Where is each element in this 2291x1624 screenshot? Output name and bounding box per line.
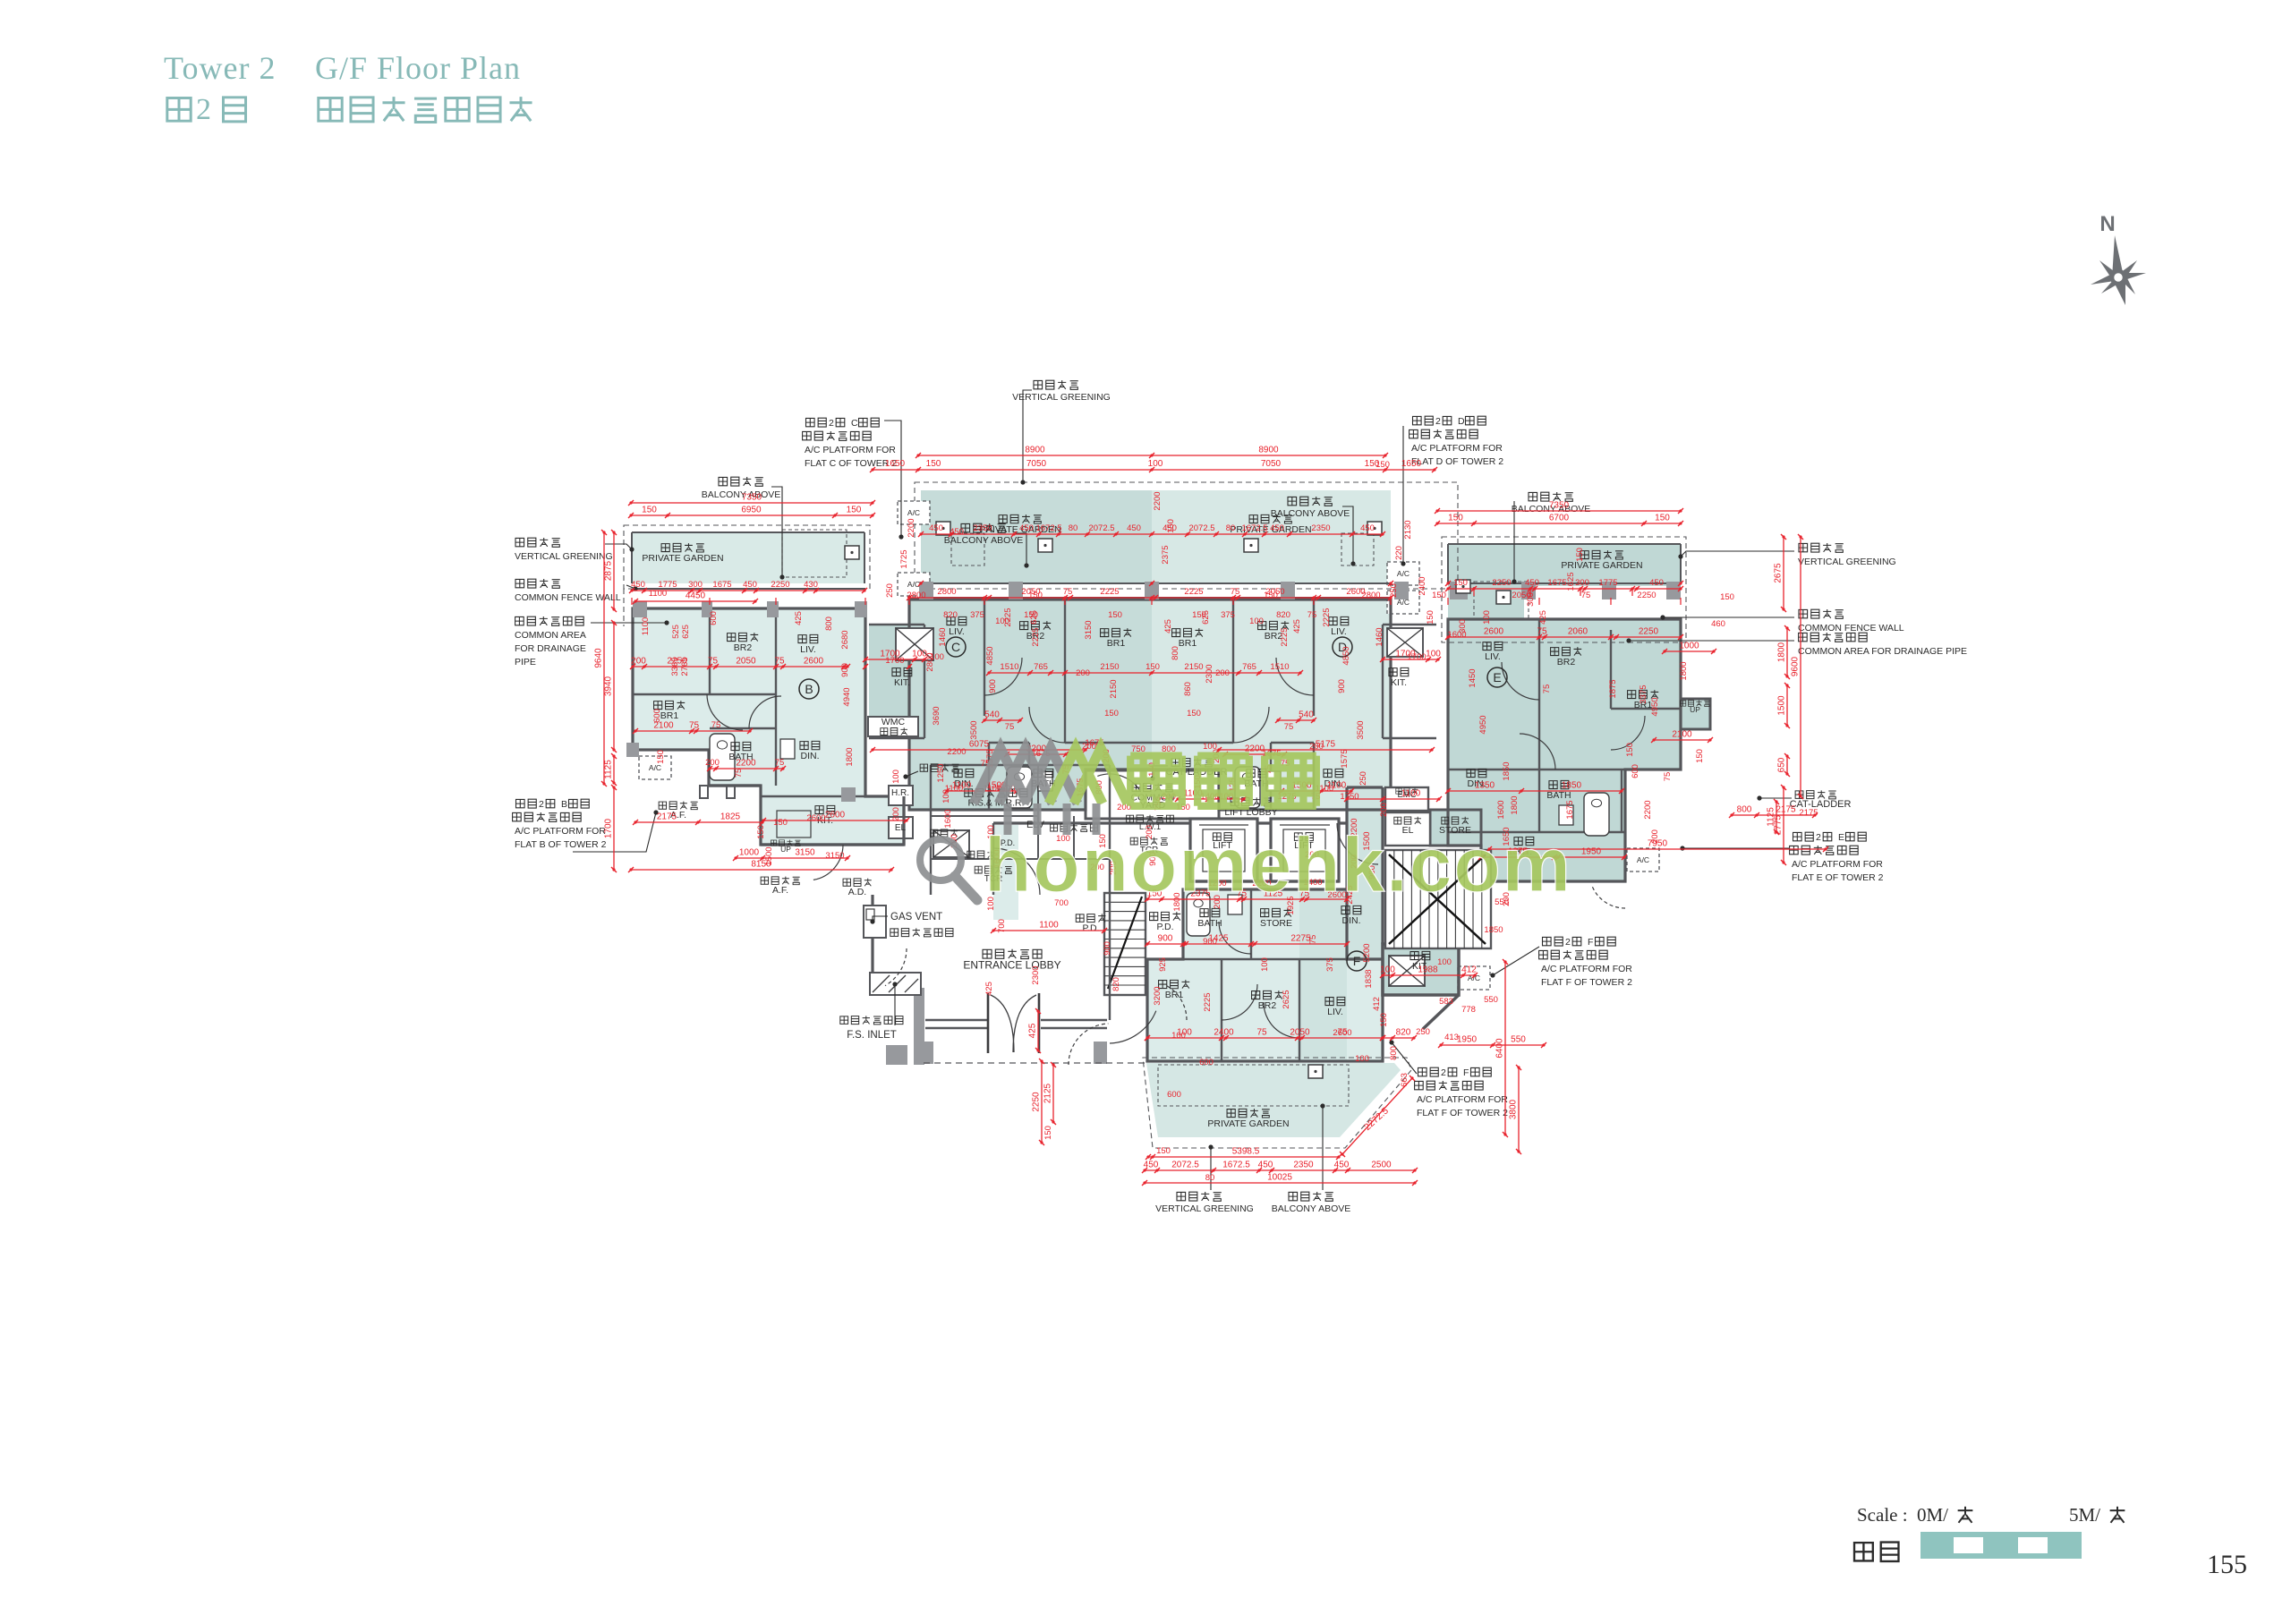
svg-text:100: 100: [995, 616, 1009, 626]
svg-text:KIT.: KIT.: [894, 677, 910, 688]
svg-text:75: 75: [1256, 1028, 1267, 1038]
svg-text:1675: 1675: [712, 580, 731, 590]
svg-text:3150: 3150: [1084, 620, 1094, 639]
svg-text:525: 525: [671, 625, 681, 639]
svg-text:460: 460: [1711, 619, 1725, 629]
svg-text:4450: 4450: [686, 591, 706, 601]
svg-text:9640: 9640: [594, 648, 604, 668]
svg-text:220: 220: [1394, 546, 1404, 560]
svg-text:100: 100: [1380, 965, 1395, 975]
svg-text:VERTICAL GREENING: VERTICAL GREENING: [1012, 392, 1111, 403]
svg-text:2250: 2250: [1492, 578, 1511, 588]
svg-text:550: 550: [1484, 995, 1498, 1005]
svg-text:LIV.: LIV.: [800, 644, 816, 655]
svg-text:150: 150: [847, 506, 862, 515]
svg-text:2: 2: [196, 93, 211, 126]
svg-text:2050: 2050: [1290, 1028, 1310, 1038]
svg-text:BR1: BR1: [1107, 638, 1126, 649]
svg-text:450: 450: [1649, 578, 1664, 588]
svg-text:BR1: BR1: [660, 710, 679, 721]
svg-text:FLAT D OF TOWER 2: FLAT D OF TOWER 2: [1411, 456, 1503, 467]
svg-text:3500: 3500: [1356, 720, 1366, 739]
svg-text:1100: 1100: [945, 784, 963, 794]
svg-text:625: 625: [1201, 610, 1211, 625]
svg-text:150: 150: [1375, 460, 1390, 470]
svg-text:2: 2: [1816, 832, 1821, 843]
svg-text:FLAT C OF TOWER 2: FLAT C OF TOWER 2: [805, 458, 897, 469]
svg-text:FOR DRAINAGE: FOR DRAINAGE: [515, 643, 586, 654]
svg-text:2600: 2600: [1333, 1028, 1351, 1038]
svg-text:2060: 2060: [1568, 627, 1588, 637]
svg-text:FLAT B OF TOWER 2: FLAT B OF TOWER 2: [515, 839, 607, 850]
svg-text:6075: 6075: [969, 740, 990, 750]
svg-text:4940: 4940: [842, 687, 852, 706]
svg-text:540: 540: [1299, 710, 1314, 720]
svg-text:2175: 2175: [1776, 805, 1796, 815]
svg-text:75: 75: [1063, 587, 1073, 597]
svg-text:1460: 1460: [1375, 627, 1384, 646]
svg-text:1100: 1100: [1401, 789, 1421, 799]
svg-text:6700: 6700: [1549, 514, 1570, 523]
svg-text:300: 300: [1575, 578, 1589, 588]
svg-text:150: 150: [642, 506, 657, 515]
svg-text:1500: 1500: [1777, 695, 1787, 716]
svg-text:75: 75: [1542, 684, 1552, 694]
svg-text:1500: 1500: [764, 846, 774, 865]
svg-text:1850: 1850: [1502, 761, 1512, 780]
svg-text:375: 375: [1221, 610, 1235, 620]
svg-text:625: 625: [1029, 610, 1039, 625]
svg-text:2500: 2500: [1371, 1161, 1392, 1170]
svg-text:80: 80: [1226, 523, 1236, 533]
svg-text:7050: 7050: [1261, 459, 1282, 469]
svg-text:1460: 1460: [938, 627, 948, 646]
svg-text:1850: 1850: [1562, 781, 1582, 791]
svg-text:FLAT F OF TOWER 2: FLAT F OF TOWER 2: [1541, 977, 1632, 988]
svg-text:F: F: [1353, 954, 1361, 968]
svg-text:200: 200: [1076, 668, 1090, 678]
svg-text:PRIVATE GARDEN: PRIVATE GARDEN: [1207, 1118, 1289, 1129]
svg-text:2130: 2130: [1403, 520, 1413, 539]
svg-text:7350: 7350: [742, 493, 762, 503]
svg-text:2175: 2175: [1799, 808, 1818, 818]
svg-text:300: 300: [688, 580, 703, 590]
svg-text:375: 375: [970, 610, 984, 620]
svg-text:1125: 1125: [1767, 807, 1776, 827]
svg-text:6950: 6950: [741, 506, 762, 515]
svg-text:8900: 8900: [1025, 446, 1045, 455]
svg-text:2225: 2225: [1031, 627, 1041, 646]
svg-text:450: 450: [1127, 523, 1141, 533]
svg-text:450: 450: [1019, 523, 1034, 533]
svg-text:100: 100: [1260, 957, 1270, 972]
svg-text:5398.5: 5398.5: [1232, 1147, 1260, 1157]
svg-text:A.D.: A.D.: [848, 887, 866, 897]
svg-text:700: 700: [997, 919, 1007, 933]
svg-text:2: 2: [829, 418, 834, 429]
svg-text:600: 600: [1199, 1058, 1214, 1067]
svg-text:2765: 2765: [680, 657, 690, 676]
svg-text:663: 663: [1400, 1073, 1410, 1087]
svg-text:VERTICAL GREENING: VERTICAL GREENING: [1798, 557, 1896, 567]
svg-text:600: 600: [1631, 764, 1640, 778]
svg-text:900: 900: [1203, 937, 1217, 947]
svg-text:1700: 1700: [604, 818, 614, 838]
svg-text:2072.5: 2072.5: [1188, 523, 1214, 533]
svg-text:820: 820: [1276, 610, 1290, 620]
svg-text:B: B: [561, 799, 567, 810]
svg-text:ENTRANCE LOBBY: ENTRANCE LOBBY: [963, 959, 1060, 972]
svg-text:3940: 3940: [604, 676, 614, 696]
svg-text:75: 75: [1537, 627, 1547, 637]
svg-text:P.D.: P.D.: [1082, 923, 1099, 934]
svg-text:1800: 1800: [1510, 795, 1520, 814]
svg-text:150: 150: [1264, 591, 1278, 600]
svg-text:Tower 2: Tower 2: [164, 50, 276, 86]
svg-text:1650: 1650: [1401, 459, 1422, 469]
svg-text:2050: 2050: [1512, 591, 1530, 600]
svg-text:800: 800: [824, 616, 834, 631]
svg-text:200: 200: [1379, 803, 1389, 817]
svg-text:D: D: [1458, 416, 1465, 427]
svg-text:800: 800: [1737, 805, 1752, 815]
svg-text:1600: 1600: [1447, 630, 1466, 640]
svg-text:425: 425: [1292, 619, 1302, 633]
svg-text:A/C: A/C: [907, 508, 920, 517]
svg-text:450: 450: [1360, 523, 1375, 533]
svg-text:A/C PLATFORM FOR: A/C PLATFORM FOR: [1411, 443, 1503, 454]
svg-text:A/C PLATFORM FOR: A/C PLATFORM FOR: [1792, 859, 1883, 870]
svg-text:2200: 2200: [907, 518, 916, 537]
svg-text:900: 900: [1103, 941, 1112, 956]
svg-text:1625: 1625: [1566, 572, 1576, 591]
svg-text:100: 100: [1148, 459, 1163, 469]
svg-text:100: 100: [1249, 616, 1264, 626]
svg-text:1800: 1800: [845, 747, 855, 766]
svg-text:150: 150: [1432, 591, 1446, 600]
svg-text:2680: 2680: [840, 630, 850, 649]
svg-text:75: 75: [708, 657, 719, 667]
svg-text:2400: 2400: [1418, 576, 1427, 595]
svg-text:1000: 1000: [739, 848, 760, 858]
svg-text:2175: 2175: [657, 812, 677, 822]
svg-text:2600: 2600: [825, 811, 846, 821]
svg-text:100: 100: [1171, 1031, 1186, 1041]
svg-text:80: 80: [1205, 1173, 1215, 1183]
svg-text:150: 150: [1104, 709, 1119, 718]
svg-text:2225: 2225: [1100, 587, 1119, 597]
svg-text:375: 375: [1325, 957, 1335, 972]
svg-text:2400: 2400: [1214, 1028, 1234, 1038]
svg-text:H.R.: H.R.: [891, 788, 909, 798]
svg-text:BATH: BATH: [1546, 790, 1571, 801]
svg-text:3375: 3375: [1639, 684, 1648, 703]
svg-text:2150: 2150: [1184, 662, 1203, 672]
svg-text:2600: 2600: [806, 813, 825, 823]
svg-text:1825: 1825: [720, 812, 741, 822]
svg-text:765: 765: [1034, 662, 1048, 672]
svg-text:430: 430: [804, 580, 818, 590]
svg-text:A/C PLATFORM FOR: A/C PLATFORM FOR: [1417, 1094, 1508, 1105]
svg-text:KIT.: KIT.: [1391, 677, 1407, 688]
svg-text:150: 150: [1448, 514, 1463, 523]
svg-text:100: 100: [1482, 610, 1492, 625]
svg-text:C: C: [951, 640, 960, 654]
svg-text:450: 450: [1270, 523, 1284, 533]
svg-text:2072.5: 2072.5: [1088, 523, 1114, 533]
svg-text:925: 925: [1158, 957, 1168, 972]
svg-text:5200: 5200: [1362, 943, 1372, 962]
svg-text:2350: 2350: [973, 523, 992, 533]
svg-text:150: 150: [756, 825, 766, 839]
svg-text:FLAT F OF TOWER 2: FLAT F OF TOWER 2: [1417, 1108, 1508, 1118]
svg-text:200: 200: [1215, 668, 1230, 678]
svg-text:1672.5: 1672.5: [1222, 1161, 1250, 1170]
svg-text:150: 150: [926, 459, 941, 469]
svg-text:2200: 2200: [1643, 800, 1653, 819]
svg-text:150: 150: [1575, 548, 1585, 562]
svg-text:4950: 4950: [1478, 715, 1488, 734]
svg-text:1838: 1838: [1364, 969, 1374, 988]
svg-text:75: 75: [1005, 722, 1015, 732]
svg-text:450: 450: [929, 523, 943, 533]
svg-text:450: 450: [1334, 1161, 1350, 1170]
svg-text:1100: 1100: [1039, 921, 1059, 931]
svg-text:800: 800: [1171, 646, 1180, 660]
svg-text:1750: 1750: [1340, 792, 1358, 802]
svg-text:450: 450: [1144, 1161, 1159, 1170]
svg-text:4850: 4850: [1341, 646, 1351, 665]
svg-text:2225: 2225: [1184, 587, 1203, 597]
svg-text:LIV.: LIV.: [1327, 1007, 1343, 1017]
svg-text:PRIVATE GARDEN: PRIVATE GARDEN: [642, 553, 723, 564]
svg-text:2225: 2225: [1322, 608, 1332, 626]
svg-text:4850: 4850: [985, 646, 995, 665]
svg-text:1600: 1600: [943, 809, 953, 828]
svg-text:150: 150: [1043, 1126, 1053, 1140]
svg-text:DIN.: DIN.: [1342, 915, 1361, 926]
svg-text:200: 200: [1309, 742, 1324, 752]
svg-text:1950: 1950: [1581, 847, 1602, 857]
svg-text:EL: EL: [895, 823, 907, 833]
svg-text:8900: 8900: [1258, 446, 1279, 455]
svg-text:PRIVATE GARDEN: PRIVATE GARDEN: [1561, 560, 1642, 571]
svg-text:900: 900: [988, 679, 998, 693]
svg-text:2800: 2800: [907, 591, 925, 600]
svg-text:2350: 2350: [1293, 1161, 1314, 1170]
svg-text:1510: 1510: [1270, 662, 1289, 672]
svg-text:LIV.: LIV.: [1485, 651, 1501, 662]
svg-text:4950: 4950: [1650, 697, 1660, 716]
svg-text:100: 100: [1355, 1054, 1369, 1064]
svg-text:800: 800: [1389, 1046, 1399, 1060]
svg-text:A/C: A/C: [907, 580, 920, 589]
svg-text:625: 625: [681, 625, 691, 639]
svg-text:LIV.: LIV.: [1331, 626, 1347, 637]
svg-text:E: E: [1493, 670, 1501, 684]
svg-text:COMMON AREA FOR DRAINAGE PIPE: COMMON AREA FOR DRAINAGE PIPE: [1798, 646, 1967, 657]
svg-text:450: 450: [631, 580, 645, 590]
svg-text:600: 600: [652, 709, 662, 723]
svg-text:540: 540: [984, 710, 1000, 720]
svg-text:1700: 1700: [885, 656, 904, 666]
svg-text:B: B: [805, 682, 813, 696]
svg-text:6400: 6400: [1495, 1038, 1505, 1059]
svg-text:765: 765: [1242, 662, 1256, 672]
svg-text:2800: 2800: [1361, 591, 1380, 600]
svg-text:1700: 1700: [1407, 652, 1426, 662]
svg-text:200: 200: [1082, 742, 1096, 752]
svg-text:200: 200: [631, 657, 646, 667]
svg-text:2150: 2150: [1100, 662, 1119, 672]
svg-text:3800: 3800: [1509, 1099, 1519, 1119]
svg-text:900: 900: [1158, 934, 1173, 944]
svg-text:BR2: BR2: [1557, 657, 1576, 667]
svg-text:F.S. INLET: F.S. INLET: [847, 1030, 897, 1041]
svg-text:200: 200: [891, 807, 901, 821]
svg-text:2225: 2225: [1203, 992, 1213, 1011]
svg-text:1800: 1800: [1777, 642, 1787, 662]
svg-text:75: 75: [711, 720, 721, 730]
svg-text:COMMON AREA: COMMON AREA: [515, 630, 586, 641]
svg-text:2600: 2600: [1484, 627, 1504, 637]
svg-text:A.F.: A.F.: [772, 885, 788, 896]
svg-text:150: 150: [1187, 709, 1201, 718]
svg-text:75: 75: [1663, 772, 1673, 782]
svg-text:200: 200: [1650, 829, 1660, 844]
svg-text:150: 150: [1028, 591, 1043, 600]
svg-text:Scale :: Scale :: [1857, 1504, 1908, 1526]
svg-text:2200: 2200: [1153, 491, 1163, 510]
svg-text:150: 150: [1625, 743, 1635, 757]
svg-text:600: 600: [1167, 1090, 1181, 1100]
svg-text:75: 75: [1308, 935, 1318, 945]
svg-text:DIN.: DIN.: [801, 751, 820, 761]
svg-text:100: 100: [1426, 650, 1441, 659]
svg-text:1510: 1510: [1000, 662, 1018, 672]
svg-text:2675: 2675: [1774, 563, 1784, 583]
svg-text:150: 150: [1655, 514, 1670, 523]
svg-text:0M/: 0M/: [1917, 1504, 1948, 1526]
svg-text:1350: 1350: [1475, 781, 1495, 791]
svg-text:450: 450: [1258, 1161, 1273, 1170]
svg-text:2200: 2200: [736, 759, 756, 769]
svg-text:2875: 2875: [604, 560, 614, 581]
svg-text:2250: 2250: [771, 580, 789, 590]
svg-text:P.D.: P.D.: [1156, 922, 1173, 932]
svg-text:600: 600: [709, 611, 719, 625]
svg-text:860: 860: [1183, 682, 1193, 696]
svg-text:1600: 1600: [1496, 800, 1506, 819]
svg-text:450: 450: [1525, 578, 1539, 588]
svg-text:155: 155: [2207, 1550, 2247, 1579]
svg-text:BR1: BR1: [1179, 638, 1197, 649]
svg-text:150: 150: [656, 750, 666, 764]
svg-text:1250: 1250: [936, 763, 946, 782]
svg-text:2250: 2250: [1032, 1092, 1042, 1112]
svg-text:650: 650: [1777, 757, 1787, 772]
svg-text:2200: 2200: [947, 747, 966, 757]
svg-text:820: 820: [943, 610, 958, 620]
svg-text:900: 900: [840, 663, 850, 677]
svg-text:1800: 1800: [1679, 661, 1689, 680]
svg-text:WMC: WMC: [881, 717, 906, 727]
svg-text:250: 250: [1416, 1027, 1430, 1037]
svg-text:2072.5: 2072.5: [1171, 1161, 1199, 1170]
svg-text:412: 412: [1372, 997, 1382, 1011]
svg-text:150: 150: [1695, 749, 1705, 763]
svg-text:1675: 1675: [1565, 800, 1575, 819]
svg-text:200: 200: [705, 758, 720, 768]
svg-text:GAS VENT: GAS VENT: [890, 912, 942, 923]
svg-text:778: 778: [1461, 1005, 1476, 1015]
svg-text:N: N: [2099, 212, 2115, 236]
svg-text:900: 900: [1337, 679, 1347, 693]
svg-text:100: 100: [1437, 957, 1452, 967]
svg-text:2800: 2800: [937, 587, 956, 597]
svg-text:75: 75: [774, 657, 785, 667]
svg-text:250: 250: [1358, 771, 1368, 786]
svg-text:5M/: 5M/: [2069, 1504, 2100, 1526]
svg-text:150: 150: [1426, 610, 1435, 625]
svg-text:75: 75: [689, 721, 700, 731]
svg-text:75: 75: [1284, 722, 1294, 732]
svg-text:250: 250: [1389, 583, 1399, 598]
svg-text:A/C: A/C: [1637, 855, 1649, 864]
svg-text:1725: 1725: [899, 549, 909, 568]
svg-text:2: 2: [539, 799, 544, 810]
svg-text:9600: 9600: [1791, 656, 1801, 676]
svg-text:3200: 3200: [1153, 986, 1163, 1005]
svg-text:7350: 7350: [1549, 501, 1570, 511]
svg-text:100: 100: [930, 652, 944, 662]
svg-text:1850: 1850: [1484, 925, 1503, 935]
svg-text:425: 425: [984, 982, 994, 996]
svg-text:425: 425: [1163, 619, 1173, 633]
svg-text:1450: 1450: [1468, 668, 1478, 687]
svg-text:820: 820: [1396, 1028, 1411, 1038]
svg-text:A/C: A/C: [1397, 569, 1410, 578]
svg-text:820: 820: [1111, 977, 1121, 991]
svg-text:425: 425: [1028, 1023, 1038, 1038]
svg-text:A/C PLATFORM FOR: A/C PLATFORM FOR: [1541, 964, 1632, 974]
svg-text:COMMON FENCE WALL: COMMON FENCE WALL: [1798, 623, 1904, 633]
svg-text:1775: 1775: [1598, 578, 1617, 588]
svg-text:COMMON FENCE WALL: COMMON FENCE WALL: [515, 592, 621, 603]
svg-text:150: 150: [1156, 1146, 1171, 1156]
svg-text:75: 75: [734, 769, 744, 778]
svg-text:3150: 3150: [795, 848, 815, 858]
svg-text:75: 75: [1581, 591, 1591, 600]
svg-text:150: 150: [1453, 578, 1468, 588]
svg-text:2050: 2050: [736, 657, 756, 667]
svg-text:2125: 2125: [1043, 1083, 1053, 1103]
svg-text:BR2: BR2: [734, 642, 753, 653]
svg-text:550: 550: [1511, 1035, 1526, 1045]
svg-text:1988: 1988: [1418, 965, 1438, 975]
svg-text:1125: 1125: [604, 760, 614, 779]
svg-text:1672.5: 1672.5: [1241, 523, 1267, 533]
svg-text:1100: 1100: [649, 589, 667, 599]
svg-text:2100: 2100: [1672, 730, 1692, 740]
svg-text:1650: 1650: [885, 459, 906, 469]
svg-text:honomehk.com: honomehk.com: [984, 822, 1571, 908]
svg-text:BATH: BATH: [1197, 918, 1222, 929]
svg-text:FLAT E OF TOWER 2: FLAT E OF TOWER 2: [1792, 872, 1884, 883]
svg-text:E: E: [1838, 832, 1844, 843]
svg-text:3365: 3365: [670, 657, 680, 676]
svg-text:150: 150: [1145, 662, 1160, 672]
